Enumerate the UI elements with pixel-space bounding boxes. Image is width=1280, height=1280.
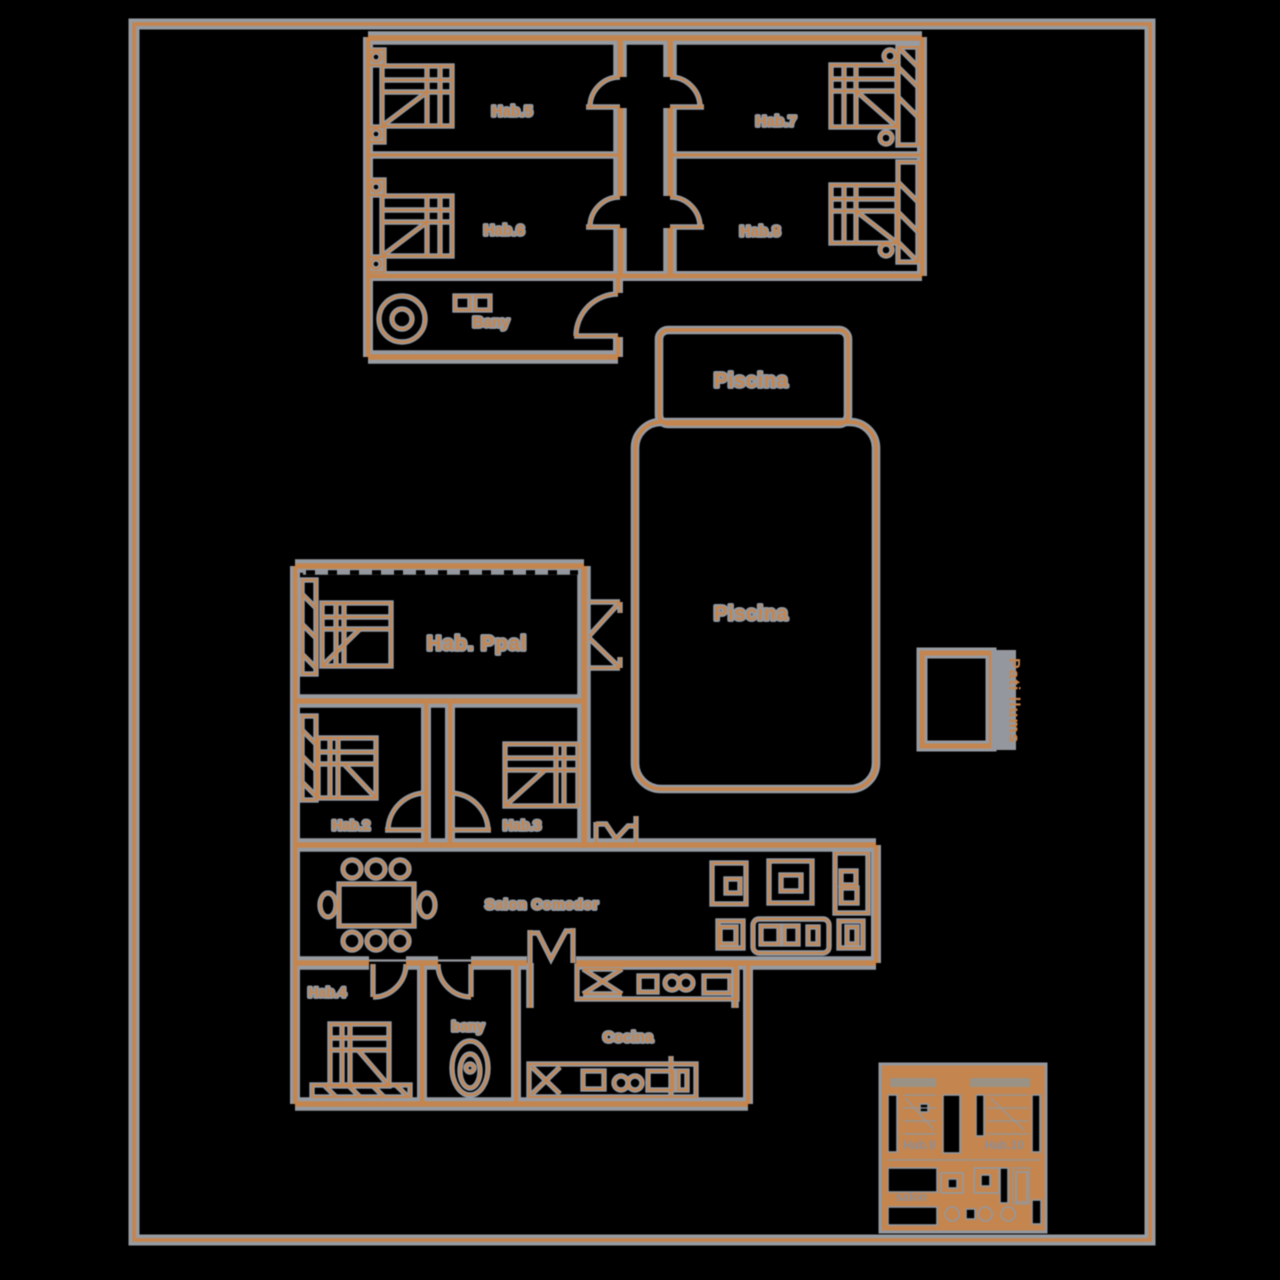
svg-text:Hab.6: Hab.6 <box>484 222 525 239</box>
svg-text:Bany: Bany <box>473 314 510 331</box>
svg-text:Hab.3: Hab.3 <box>503 817 541 833</box>
svg-text:Hab. Ppal: Hab. Ppal <box>427 633 527 655</box>
svg-text:Salon Comedor: Salon Comedor <box>485 896 599 912</box>
svg-text:Hab.10: Hab.10 <box>984 1138 1024 1152</box>
svg-text:Hab.8: Hab.8 <box>740 223 781 240</box>
svg-text:Piscina: Piscina <box>714 603 789 625</box>
svg-text:salon: salon <box>895 1190 926 1204</box>
svg-text:Hab.5: Hab.5 <box>492 103 533 120</box>
svg-text:Hab.9: Hab.9 <box>903 1138 936 1152</box>
svg-text:Hab.2: Hab.2 <box>332 817 370 833</box>
svg-text:bany: bany <box>452 1018 485 1034</box>
svg-text:Hab.7: Hab.7 <box>756 113 797 130</box>
svg-text:Piscina: Piscina <box>714 370 789 392</box>
svg-text:Cocina: Cocina <box>603 1029 654 1046</box>
svg-text:Pati llums: Pati llums <box>1005 658 1022 744</box>
svg-text:Hab.4: Hab.4 <box>308 984 346 1000</box>
